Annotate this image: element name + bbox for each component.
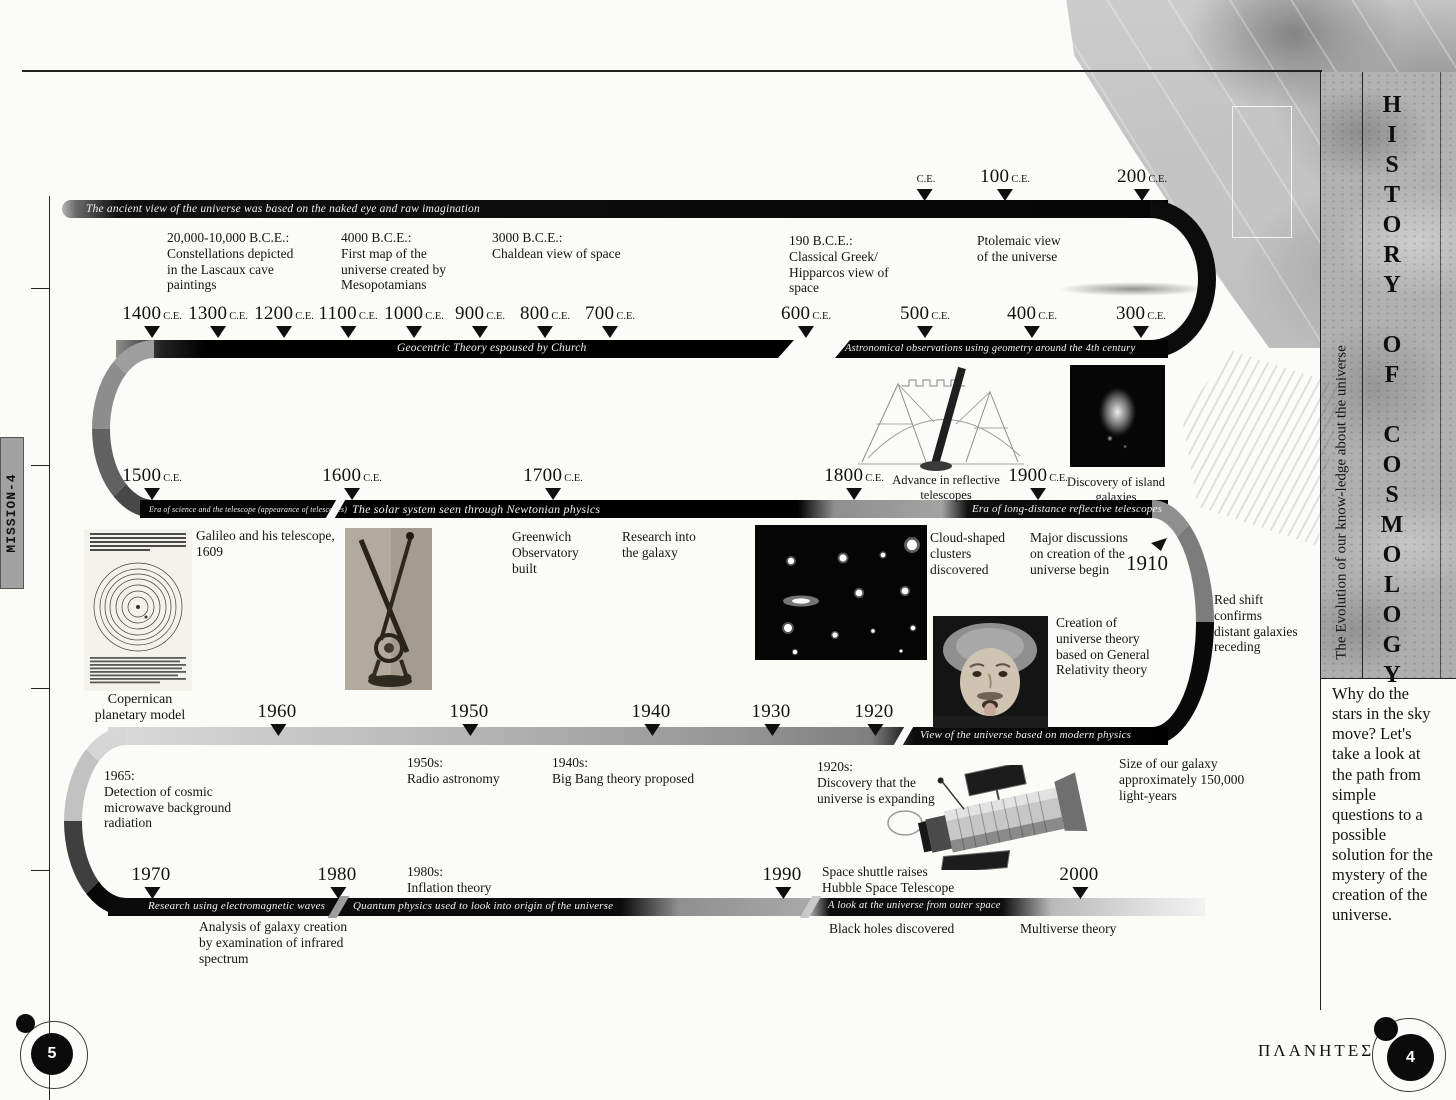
- timeline-marker-1300ce: 1300C.E.: [188, 303, 248, 338]
- event-cmb-1965: 1965: Detection of cosmic microwave back…: [104, 768, 231, 831]
- timeline-marker-1910: 1910: [1126, 551, 1168, 576]
- event-inflation-1980s: 1980s: Inflation theory: [407, 864, 491, 896]
- era-banner-geometry: Astronomical observations using geometry…: [845, 343, 1135, 354]
- event-relativity: Creation of universe theory based on Gen…: [1056, 615, 1150, 678]
- collage-sketch-texture: [1182, 350, 1340, 546]
- top-rule: [22, 70, 1322, 72]
- timeline-marker-1500ce: 1500C.E.: [122, 465, 182, 500]
- event-chaldean: 3000 B.C.E.: Chaldean view of space: [492, 230, 621, 262]
- page-number-right: 4: [1387, 1034, 1434, 1081]
- marker-triangle-icon: [276, 326, 292, 338]
- star-cluster-photo: [755, 525, 927, 660]
- marker-triangle-icon: [997, 189, 1013, 201]
- marker-triangle-icon: [340, 326, 356, 338]
- timeline-marker-500ce: 500C.E.: [900, 303, 950, 338]
- event-cloud-clusters: Cloud-shaped clusters discovered: [930, 530, 1005, 577]
- event-multiverse: Multiverse theory: [1020, 921, 1116, 937]
- marker-triangle-icon: [644, 724, 660, 736]
- event-ptolemaic: Ptolemaic view of the universe: [977, 233, 1061, 265]
- timeline-marker-1900ce: 1900C.E.: [1008, 465, 1068, 500]
- event-galaxy-size: Size of our galaxy approximately 150,000…: [1119, 756, 1244, 803]
- era-banner-newtonian: The solar system seen through Newtonian …: [352, 502, 600, 517]
- event-black-holes: Black holes discovered: [829, 921, 954, 937]
- timeline-marker-2000: 2000: [1059, 864, 1100, 899]
- era-banner-ancient: The ancient view of the universe was bas…: [86, 203, 480, 215]
- timeline-marker-1990: 1990: [762, 864, 803, 899]
- left-margin-tick: [31, 688, 49, 689]
- event-bigbang-1940s: 1940s: Big Bang theory proposed: [552, 755, 694, 787]
- page-title: HISTORY OF COSMOLOGY: [1378, 92, 1405, 692]
- marker-triangle-icon: [144, 326, 160, 338]
- event-radio-1950s: 1950s: Radio astronomy: [407, 755, 500, 787]
- copernican-model-image: [84, 529, 192, 691]
- marker-triangle-icon: [210, 326, 226, 338]
- left-margin-line: [49, 196, 50, 1100]
- marker-triangle-icon: [602, 326, 618, 338]
- left-margin-tick: [31, 870, 49, 871]
- marker-triangle-icon: [462, 724, 478, 736]
- event-galileo: Galileo and his telescope, 1609: [196, 528, 335, 560]
- left-margin-tick: [31, 288, 49, 289]
- brand-logotype: ΠΛΑΝΗΤΕΣ: [1258, 1041, 1374, 1061]
- marker-triangle-icon: [775, 887, 791, 899]
- timeline-marker-1930: 1930: [751, 701, 792, 736]
- sidebar-rule-left: [1320, 72, 1321, 1010]
- timeline-marker-1800ce: 1800C.E.: [824, 465, 884, 500]
- event-greenwich: Greenwich Observatory built: [512, 529, 579, 576]
- marker-triangle-icon: [867, 724, 883, 736]
- marker-triangle-icon: [1024, 326, 1040, 338]
- timeline-marker-1200ce: 1200C.E.: [254, 303, 314, 338]
- collage-outline-box: [1232, 106, 1292, 238]
- sidebar-rule-right: [1440, 72, 1441, 678]
- event-galaxy-research: Research into the galaxy: [622, 529, 696, 561]
- timeline-band-turn-left-1-top: [92, 340, 154, 429]
- timeline-marker-900ce: 900C.E.: [455, 303, 505, 338]
- observatory-telescope-sketch: [850, 362, 1030, 474]
- event-copernican-caption: Copernican planetary model: [95, 692, 186, 725]
- event-expanding-1920s: 1920s: Discovery that the universe is ex…: [817, 759, 935, 806]
- era-banner-outer-space: A look at the universe from outer space: [828, 900, 1001, 911]
- orbit-satellite-icon: [1374, 1017, 1398, 1041]
- era-banner-quantum: Quantum physics used to look into origin…: [353, 900, 613, 912]
- timeline-marker-700ce: 700C.E.: [585, 303, 635, 338]
- event-red-shift: Red shift confirms distant galaxies rece…: [1214, 592, 1298, 655]
- era-banner-telescope: Era of science and the telescope (appear…: [149, 504, 347, 514]
- event-lascaux: 20,000-10,000 B.C.E.: Constellations dep…: [167, 230, 293, 293]
- event-hipparcos: 190 B.C.E.: Classical Greek/ Hipparcos v…: [789, 233, 889, 296]
- marker-triangle-icon: [344, 488, 360, 500]
- timeline-marker-1100ce: 1100C.E.: [318, 303, 377, 338]
- left-margin-tick: [31, 465, 49, 466]
- timeline-marker-800ce: 800C.E.: [520, 303, 570, 338]
- timeline-marker-ce: C.E.: [915, 166, 936, 201]
- marker-triangle-icon: [144, 887, 160, 899]
- marker-triangle-icon: [917, 326, 933, 338]
- marker-triangle-icon: [270, 724, 286, 736]
- timeline-marker-1980: 1980: [317, 864, 358, 899]
- marker-triangle-icon: [406, 326, 422, 338]
- timeline-marker-1970: 1970: [131, 864, 172, 899]
- timeline-marker-300ce: 300C.E.: [1116, 303, 1166, 338]
- marker-triangle-icon: [144, 488, 160, 500]
- book-page: The ancient view of the universe was bas…: [0, 0, 1456, 1100]
- era-banner-electromagnetic: Research using electromagnetic waves: [148, 900, 325, 912]
- event-hubble-launch: Space shuttle raises Hubble Space Telesc…: [822, 864, 954, 896]
- timeline-marker-1940: 1940: [631, 701, 672, 736]
- page-number-left: 5: [31, 1033, 73, 1075]
- timeline-marker-1600ce: 1600C.E.: [322, 465, 382, 500]
- era-banner-modern-physics: View of the universe based on modern phy…: [920, 729, 1131, 741]
- marker-triangle-icon: [537, 326, 553, 338]
- marker-triangle-icon: [1134, 189, 1150, 201]
- marker-triangle-icon: [917, 189, 933, 201]
- timeline-marker-600ce: 600C.E.: [781, 303, 831, 338]
- timeline-marker-200ce: 200C.E.: [1117, 166, 1167, 201]
- timeline-marker-1000ce: 1000C.E.: [384, 303, 444, 338]
- marker-triangle-icon: [472, 326, 488, 338]
- marker-triangle-icon: [798, 326, 814, 338]
- timeline-marker-1960: 1960: [257, 701, 298, 736]
- einstein-photo: [933, 616, 1048, 728]
- timeline-marker-1700ce: 1700C.E.: [523, 465, 583, 500]
- marker-triangle-icon: [1030, 488, 1046, 500]
- marker-triangle-icon: [330, 887, 346, 899]
- marker-triangle-icon: [545, 488, 561, 500]
- galileo-telescope-photo: [345, 528, 432, 690]
- intro-paragraph: Why do the stars in the sky move? Let's …: [1332, 684, 1438, 926]
- timeline-marker-1920: 1920: [854, 701, 895, 736]
- timeline-marker-100ce: 100C.E.: [980, 166, 1030, 201]
- page-subtitle: The Evolution of our know-ledge about th…: [1334, 330, 1351, 676]
- mission-tab: MISSION-4: [0, 437, 24, 589]
- timeline-marker-1400ce: 1400C.E.: [122, 303, 182, 338]
- era-banner-long-distance: Era of long-distance reflective telescop…: [972, 503, 1162, 515]
- event-island-galaxies: Discovery of island galaxies: [1067, 475, 1165, 504]
- event-infrared-analysis: Analysis of galaxy creation by examinati…: [199, 919, 347, 966]
- sidebar-rule-mid: [1362, 72, 1363, 678]
- era-banner-geocentric: Geocentric Theory espoused by Church: [397, 342, 586, 354]
- marker-triangle-icon: [846, 488, 862, 500]
- island-galaxy-photo: [1070, 365, 1165, 467]
- timeline-marker-1950: 1950: [449, 701, 490, 736]
- marker-triangle-icon: [1133, 326, 1149, 338]
- timeline-marker-400ce: 400C.E.: [1007, 303, 1057, 338]
- marker-triangle-icon: [764, 724, 780, 736]
- orbit-satellite-icon: [16, 1014, 35, 1033]
- event-mesopotamia: 4000 B.C.E.: First map of the universe c…: [341, 230, 446, 293]
- marker-triangle-icon: [1072, 887, 1088, 899]
- event-creation-discussions: Major discussions on creation of the uni…: [1030, 530, 1128, 577]
- event-advance-reflective: Advance in reflective telescopes: [892, 473, 1000, 502]
